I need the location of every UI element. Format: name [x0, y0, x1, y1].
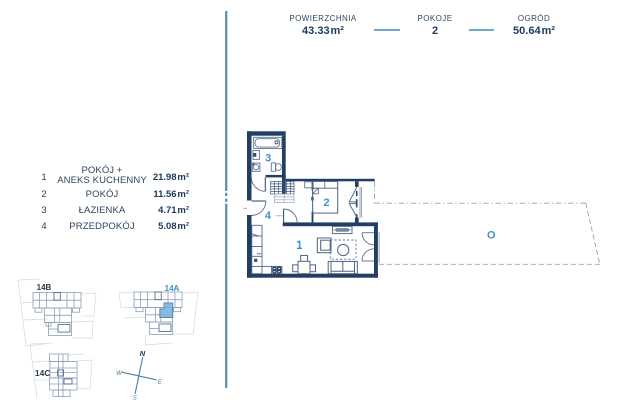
svg-text:4: 4	[265, 210, 272, 222]
svg-text:S: S	[133, 396, 137, 400]
svg-text:3: 3	[265, 152, 271, 164]
svg-text:1: 1	[296, 240, 303, 252]
svg-text:N: N	[140, 349, 146, 358]
svg-text:14B: 14B	[37, 283, 52, 292]
svg-text:E: E	[158, 380, 163, 386]
svg-text:O: O	[487, 230, 496, 242]
svg-text:14C: 14C	[35, 368, 51, 378]
svg-text:14A: 14A	[165, 284, 180, 293]
svg-text:2: 2	[323, 197, 329, 209]
